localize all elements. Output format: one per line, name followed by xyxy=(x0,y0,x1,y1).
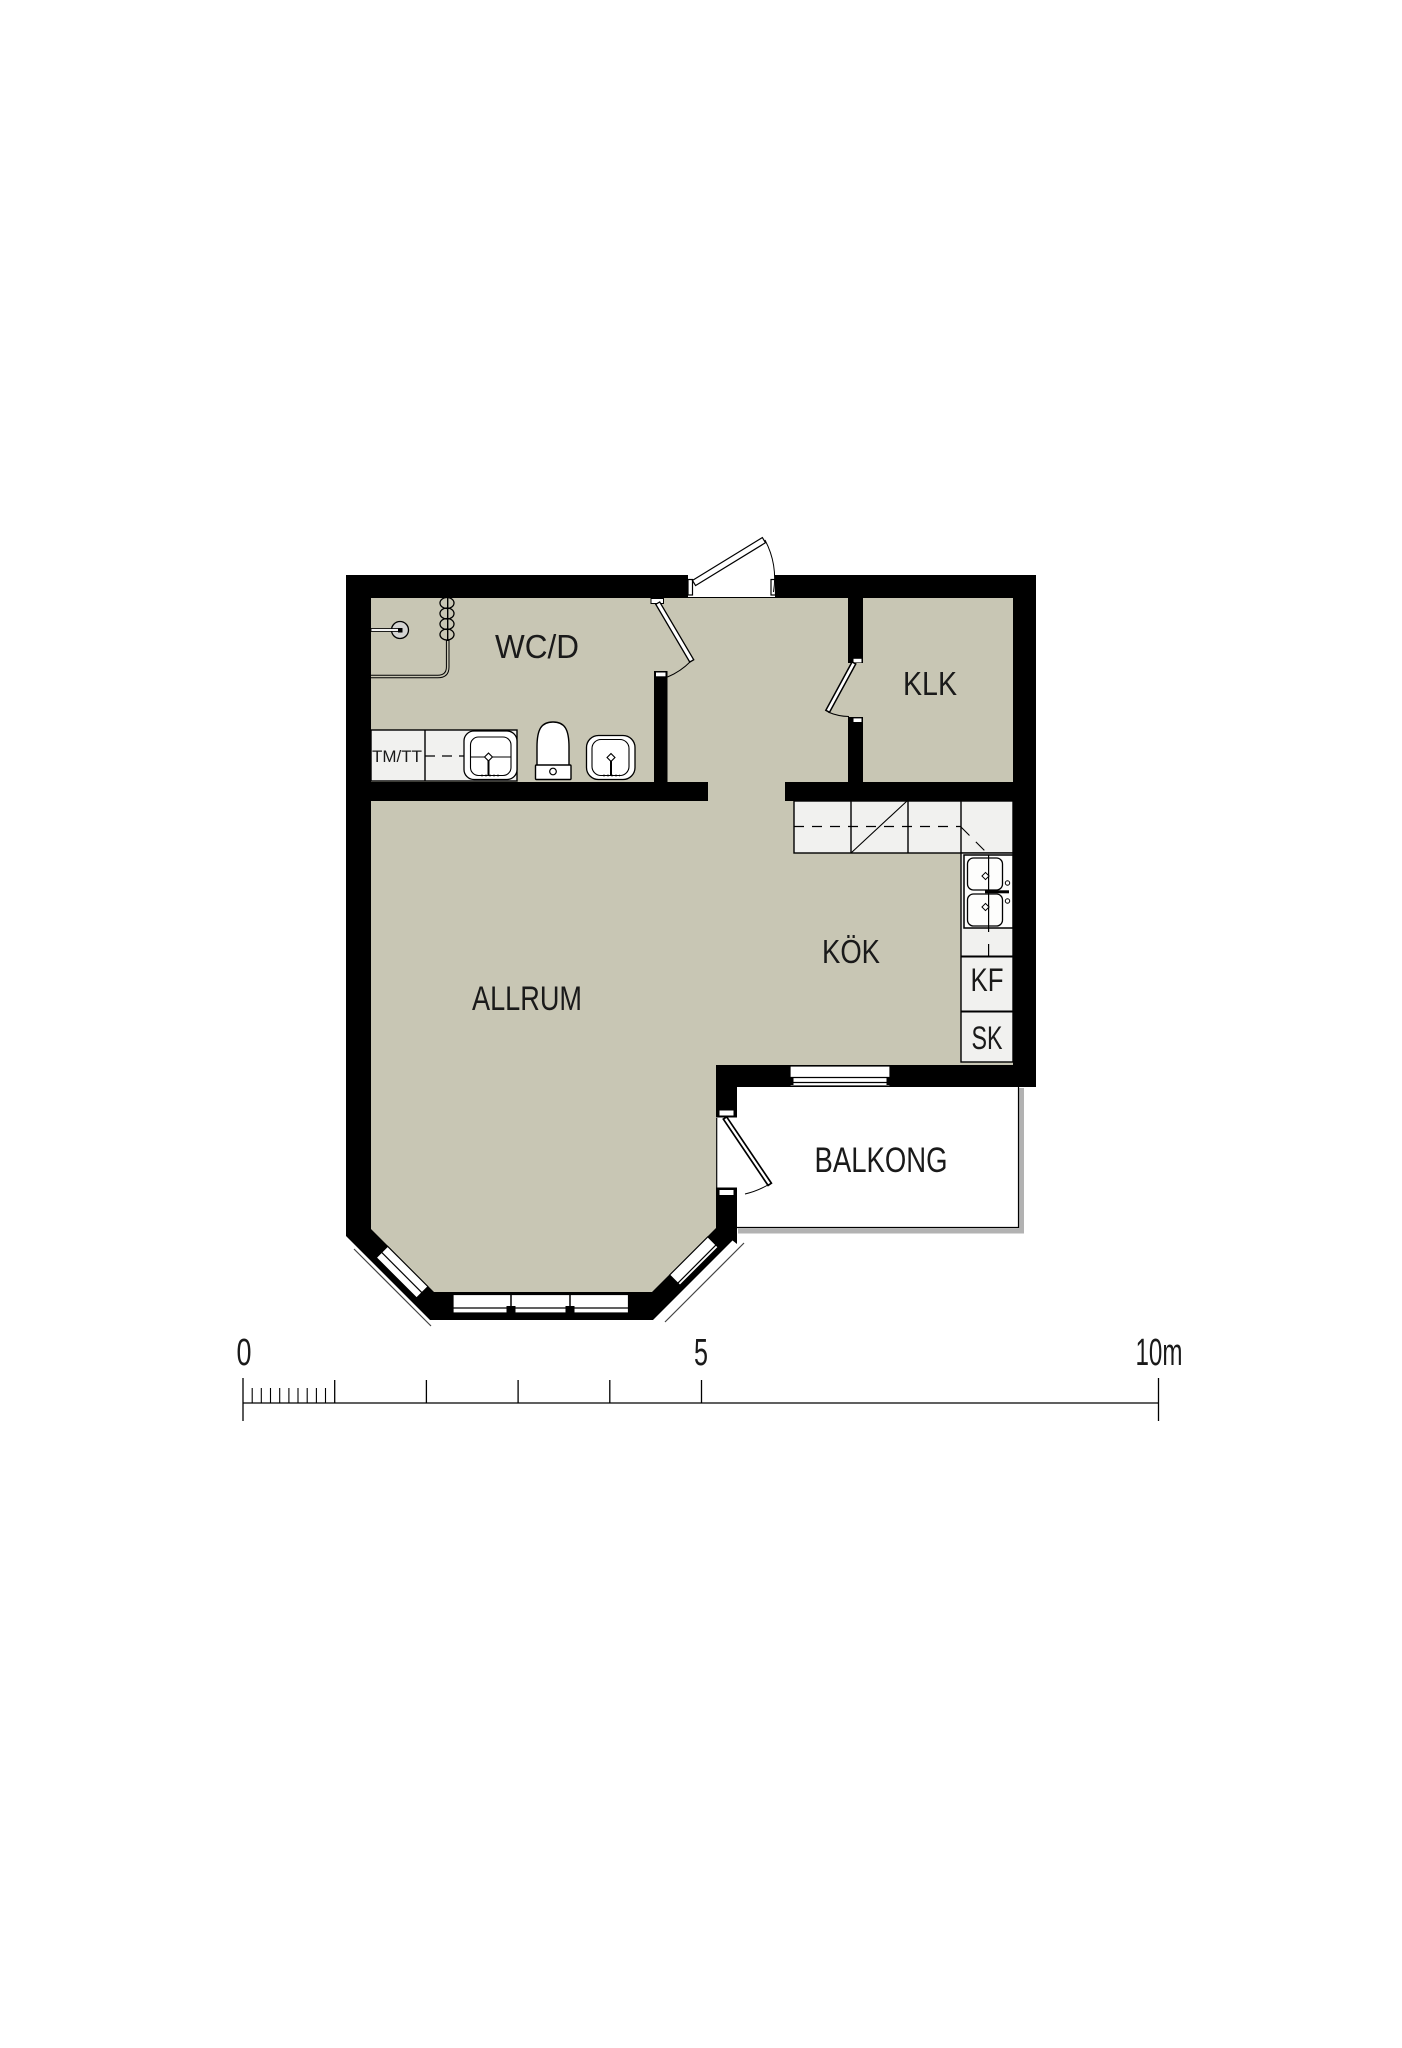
svg-text:TM/TT: TM/TT xyxy=(372,747,422,766)
svg-text:WC/D: WC/D xyxy=(495,628,579,665)
svg-text:KF: KF xyxy=(971,962,1004,998)
svg-text:5: 5 xyxy=(694,1332,708,1374)
svg-text:10m: 10m xyxy=(1136,1332,1183,1374)
svg-text:SK: SK xyxy=(972,1020,1003,1056)
svg-text:0: 0 xyxy=(237,1332,252,1374)
svg-text:ALLRUM: ALLRUM xyxy=(472,980,582,1018)
svg-text:KÖK: KÖK xyxy=(822,933,880,970)
svg-text:KLK: KLK xyxy=(903,665,957,702)
svg-text:BALKONG: BALKONG xyxy=(815,1141,948,1180)
